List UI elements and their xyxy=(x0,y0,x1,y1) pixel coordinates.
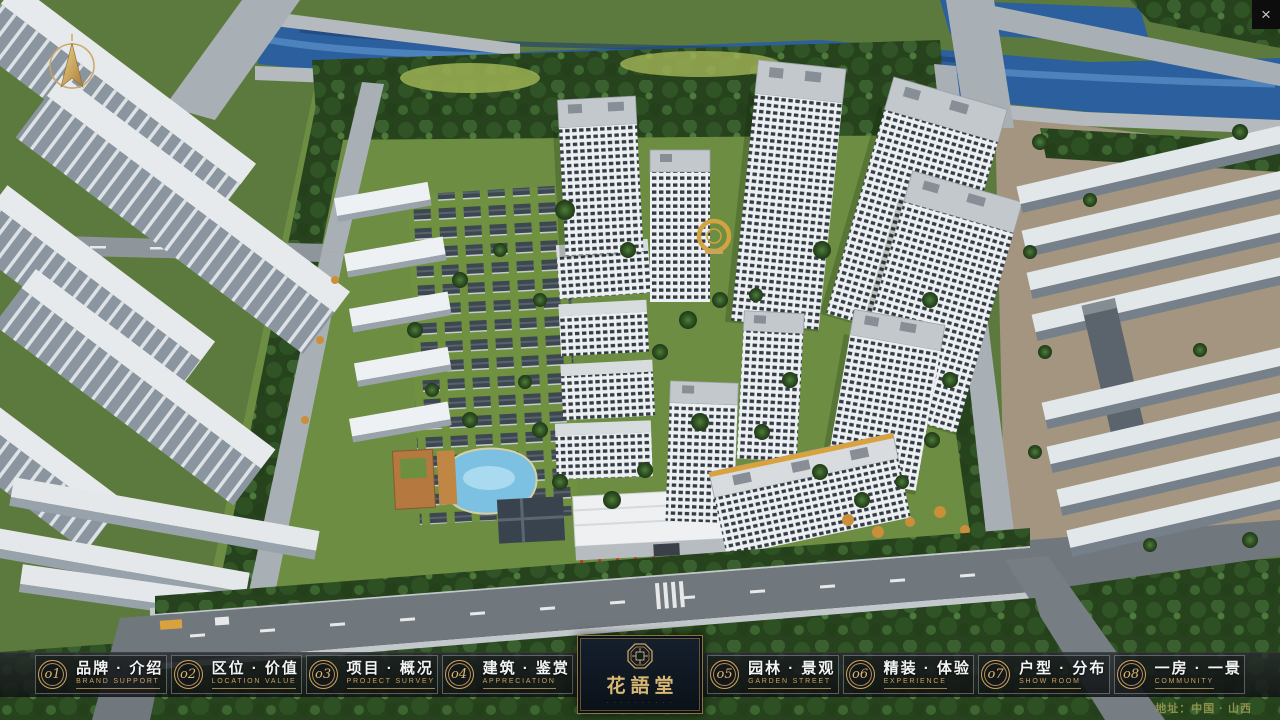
nav-badge-7: o7 xyxy=(981,660,1010,689)
app-window: × o1 品牌 · 介绍BRAND SUPPORT o2 区位 · 价值LOCA… xyxy=(0,0,1280,720)
nav-badge-8: o8 xyxy=(1117,660,1146,689)
nav-label-zh: 建筑 · 鉴赏 xyxy=(483,660,570,677)
nav-badge-6: o6 xyxy=(846,660,875,689)
nav-item-project[interactable]: o3 项目 · 概况PROJECT SURVEY xyxy=(306,655,438,694)
nav-badge-4: o4 xyxy=(445,660,474,689)
nav-label-zh: 品牌 · 介绍 xyxy=(76,660,163,677)
logo-title: 花語堂 xyxy=(601,671,678,698)
close-icon: × xyxy=(1261,5,1271,25)
lawn-patch xyxy=(620,51,780,77)
nav-label-en: SHOW ROOM xyxy=(1019,677,1081,689)
nav-label-en: EXPERIENCE xyxy=(884,677,947,689)
nav-label-zh: 区位 · 价值 xyxy=(212,660,299,677)
lawn-patch xyxy=(400,63,540,93)
seal-emblem-icon xyxy=(627,643,653,669)
nav-label-zh: 项目 · 概况 xyxy=(347,660,434,677)
north-arrow-icon xyxy=(42,32,102,96)
logo-panel[interactable]: 花語堂 · · · · · · · · · · xyxy=(577,635,703,714)
nav-badge-3: o3 xyxy=(309,660,338,689)
nav-item-garden[interactable]: o5 园林 · 景观GARDEN STREET xyxy=(707,655,839,694)
nav-label-zh: 精装 · 体验 xyxy=(884,660,971,677)
nav-item-location[interactable]: o2 区位 · 价值LOCATION VALUE xyxy=(171,655,303,694)
nav-label-en: COMMUNITY xyxy=(1155,677,1214,689)
nav-item-architecture[interactable]: o4 建筑 · 鉴赏APPRECIATION xyxy=(442,655,574,694)
nav-badge-5: o5 xyxy=(710,660,739,689)
nav-badge-2: o2 xyxy=(174,660,203,689)
nav-label-en: LOCATION VALUE xyxy=(212,677,297,689)
masterplan-render xyxy=(0,0,1280,720)
nav-item-community[interactable]: o8 一房 · 一景COMMUNITY xyxy=(1114,655,1246,694)
nav-label-zh: 户型 · 分布 xyxy=(1019,660,1106,677)
nav-label-en: PROJECT SURVEY xyxy=(347,677,435,689)
nav-label-en: GARDEN STREET xyxy=(748,677,831,689)
nav-badge-1: o1 xyxy=(38,660,67,689)
nav-label-en: BRAND SUPPORT xyxy=(76,677,160,689)
nav-label-en: APPRECIATION xyxy=(483,677,556,689)
close-button[interactable]: × xyxy=(1252,0,1280,29)
nav-label-zh: 园林 · 景观 xyxy=(748,660,835,677)
nav-item-brand[interactable]: o1 品牌 · 介绍BRAND SUPPORT xyxy=(35,655,167,694)
logo-tagline: · · · · · · · · · · xyxy=(606,700,673,706)
nav-label-zh: 一房 · 一景 xyxy=(1155,660,1242,677)
nav-item-decoration[interactable]: o6 精装 · 体验EXPERIENCE xyxy=(843,655,975,694)
pond-highlight xyxy=(463,466,515,490)
address-text: 地址：中国 · 山西 xyxy=(1155,700,1252,716)
nav-item-floorplan[interactable]: o7 户型 · 分布SHOW ROOM xyxy=(978,655,1110,694)
pavilion xyxy=(497,496,565,543)
orange-courtyard-building xyxy=(392,448,457,509)
compass xyxy=(42,32,102,96)
